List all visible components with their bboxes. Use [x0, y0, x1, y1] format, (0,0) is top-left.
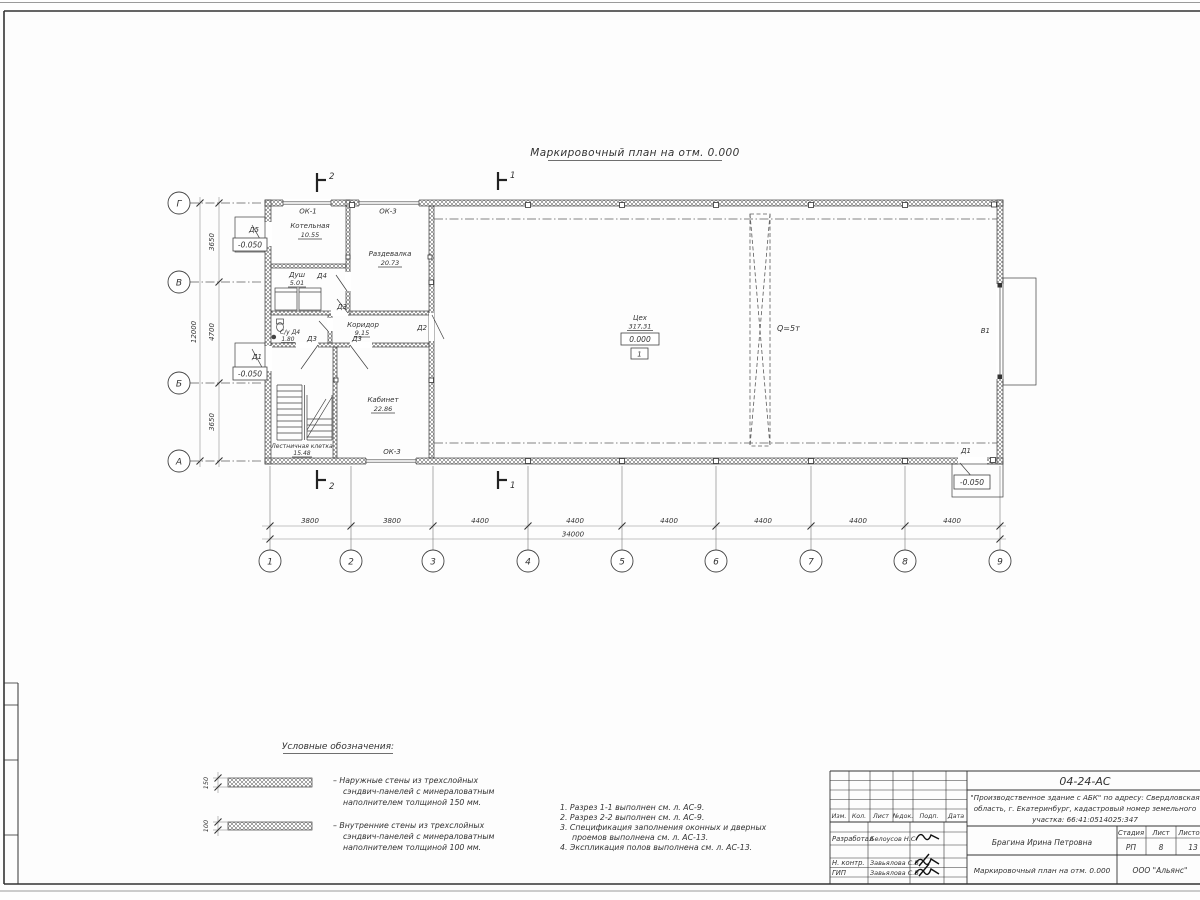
tb-col-data: Дата — [947, 813, 964, 820]
room-number-text: 1 — [637, 351, 641, 359]
tb-sheets-header: Листов — [1177, 829, 1200, 837]
legend-item1-line3: наполнителем толщиной 150 мм. — [343, 798, 481, 807]
window-ok1-label: ОК-1 — [299, 208, 316, 216]
crane-capacity-label: Q=5т — [777, 324, 800, 333]
door-d1-bottom-label: Д1 — [960, 447, 971, 455]
door-d2-label: Д2 — [416, 324, 427, 332]
dim-3650-top: 3650 — [208, 233, 216, 251]
tb-razrabotal-role: Разработал — [832, 835, 874, 843]
plan-title: Маркировочный план на отм. 0.000 — [530, 147, 739, 161]
tb-col-kol: Кол. — [852, 813, 866, 820]
dim-4400-5: 4400 — [849, 517, 867, 525]
axis-col-8: 8 — [902, 558, 908, 568]
level-minus-bottom-right: -0.050 — [960, 478, 984, 487]
dim-4400-2: 4400 — [566, 517, 584, 525]
door-d1-left-label: Д1 — [251, 353, 262, 361]
note-1: 1. Разрез 1-1 выполнен см. л. АС-9. — [560, 803, 704, 812]
tb-gip-name: Завьялова С.В — [870, 869, 919, 877]
room-lestnichnaya-name: Лестничная клетка — [270, 443, 333, 450]
dim-3800-1: 3800 — [301, 517, 319, 525]
room-lestnichnaya-area: 15.48 — [293, 450, 310, 457]
door-d3a-label: Д3 — [336, 303, 347, 311]
door-d3c-label: Д3 — [351, 335, 362, 343]
tb-razrabotal-name: Белоусов Н.С. — [870, 835, 917, 843]
axis-row-a: А — [175, 458, 182, 468]
room-su-area: 1.80 — [282, 337, 295, 343]
door-d4-label: Д4 — [316, 272, 327, 280]
room-tseh-name: Цех — [633, 314, 648, 322]
floor-drain-icon — [272, 335, 277, 340]
dim-total-12000: 12000 — [190, 320, 198, 343]
room-dush-area: 5.01 — [290, 279, 304, 287]
section-2-bottom: 2 — [329, 482, 334, 492]
tb-doc-code: 04-24-АС — [1059, 775, 1110, 788]
tb-gip-role: ГИП — [832, 869, 846, 877]
room-kotelnaya-area: 10.55 — [301, 231, 320, 239]
legend-wall-interior-symbol — [228, 822, 312, 830]
room-tseh-area: 317,31 — [629, 323, 652, 331]
tb-nkontr-name: Завьялова С.В — [870, 859, 919, 867]
dim-4400-6: 4400 — [943, 517, 961, 525]
legend-title: Условные обозначения: — [282, 742, 394, 752]
level-minus-top-left: -0.050 — [238, 241, 262, 250]
room-su-name: С/у Д4 — [280, 329, 300, 336]
room-kabinet-name: Кабинет — [367, 396, 399, 404]
tb-project-line3: участка: 66:41:0514025:347 — [1031, 815, 1138, 824]
axis-col-5: 5 — [619, 558, 625, 568]
window-ok3-bottom-label: ОК-3 — [383, 448, 400, 456]
room-koridor-name: Коридор — [347, 321, 379, 329]
drawing-sheet: Маркировочный план на отм. 0.000 3800 38… — [0, 0, 1200, 900]
tb-company: ООО "Альянс" — [1133, 866, 1188, 875]
note-2: 2. Разрез 2-2 выполнен см. л. АС-9. — [560, 813, 704, 822]
tb-sheet-value: 8 — [1159, 843, 1164, 852]
door-d5-label: Д5 — [248, 226, 259, 234]
section-1-top: 1 — [510, 171, 515, 181]
note-3-line2: проемов выполнена см. л. АС-13. — [572, 833, 708, 842]
gate-v1-label: В1 — [981, 327, 990, 335]
room-kabinet-area: 22.86 — [374, 405, 393, 413]
room-razdevalka-area: 20.73 — [381, 259, 400, 267]
axis-col-3: 3 — [430, 558, 436, 568]
section-2-top: 2 — [329, 172, 334, 182]
legend-item1-line2: сэндвич-панелей с минераловатным — [343, 787, 494, 796]
room-razdevalka-name: Раздевалка — [369, 250, 412, 258]
legend-item1-line1: – Наружные стены из трехслойных — [333, 776, 478, 785]
tb-sheets-value: 13 — [1188, 843, 1198, 852]
tb-col-podp: Подп. — [919, 813, 938, 820]
door-d3b-label: Д3 — [306, 335, 317, 343]
legend-item2-line2: сэндвич-панелей с минераловатным — [343, 832, 494, 841]
axis-col-1: 1 — [267, 558, 273, 568]
tb-stage-value: РП — [1126, 843, 1137, 852]
dim-4400-4: 4400 — [754, 517, 772, 525]
tb-stage-header: Стадия — [1118, 829, 1144, 837]
axis-row-v: В — [176, 279, 182, 289]
axis-col-4: 4 — [525, 558, 531, 568]
axis-col-6: 6 — [713, 558, 719, 568]
dim-4400-3: 4400 — [660, 517, 678, 525]
legend-item2-line1: – Внутренние стены из трехслойных — [333, 821, 485, 830]
axis-row-b: Б — [176, 380, 182, 390]
tb-project-line1: "Производственное здание с АБК" по адрес… — [970, 793, 1200, 802]
legend-item2-line3: наполнителем толщиной 100 мм. — [343, 843, 481, 852]
dim-4700: 4700 — [208, 323, 216, 341]
axis-col-2: 2 — [348, 558, 354, 568]
tb-col-list: Лист — [872, 813, 889, 820]
tb-project-line2: область, г. Екатеринбург, кадастровый но… — [974, 804, 1197, 813]
note-3-line1: 3. Спецификация заполнения оконных и две… — [560, 823, 767, 832]
note-4: 4. Экспликация полов выполнена см. л. АС… — [560, 843, 752, 852]
legend-wall-exterior-symbol — [228, 778, 312, 787]
axis-col-7: 7 — [808, 558, 814, 568]
tb-sheet-header: Лист — [1151, 829, 1170, 837]
axis-col-9: 9 — [997, 558, 1003, 568]
dim-total-34000: 34000 — [562, 531, 585, 539]
tb-author: Брагина Ирина Петровна — [992, 838, 1093, 847]
plan-title-text: Маркировочный план на отм. 0.000 — [530, 147, 739, 159]
window-ok3-top-label: ОК-3 — [379, 208, 396, 216]
tb-doc-title: Маркировочный план на отм. 0.000 — [974, 866, 1111, 875]
dim-4400-1: 4400 — [471, 517, 489, 525]
room-dush-name: Душ — [288, 271, 306, 279]
tb-col-izm: Изм. — [832, 813, 847, 820]
legend-thickness-150: 150 — [202, 777, 210, 789]
section-1-bottom: 1 — [510, 481, 515, 491]
level-zero-text: 0.000 — [629, 335, 651, 344]
dim-3800-2: 3800 — [383, 517, 401, 525]
dim-3650-bottom: 3650 — [208, 413, 216, 431]
tb-col-ndok: №док. — [892, 813, 914, 820]
tb-nkontr-role: Н. контр. — [832, 859, 865, 867]
legend-thickness-100: 100 — [202, 820, 210, 832]
level-minus-mid-left: -0.050 — [238, 370, 262, 379]
room-kotelnaya-name: Котельная — [290, 222, 329, 230]
